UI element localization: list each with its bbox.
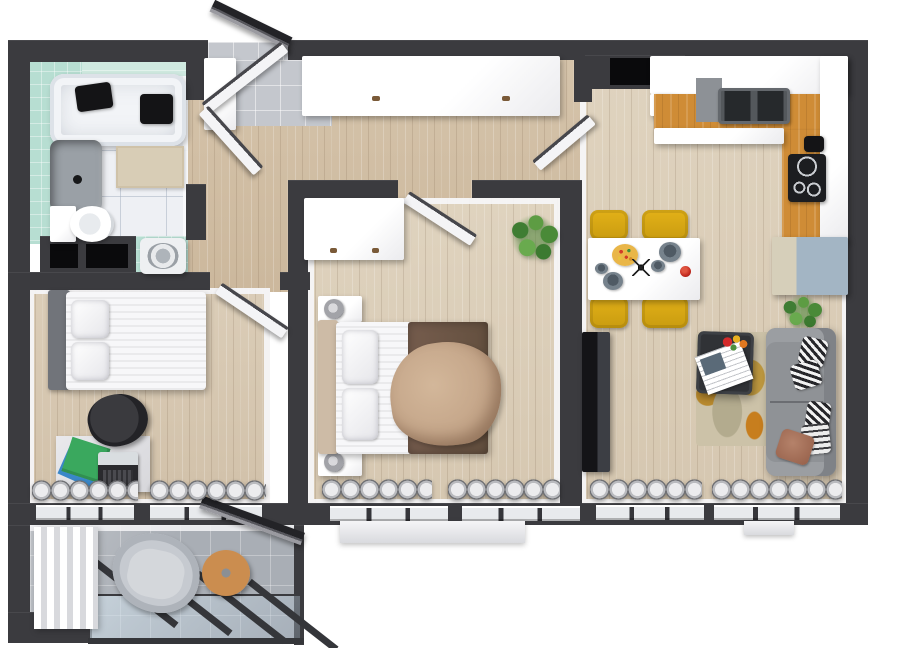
- lamp-bottom: [324, 452, 344, 472]
- wardrobe2-handle-1: [330, 248, 337, 253]
- storage-niche-left: [50, 244, 78, 268]
- cooktop: [788, 154, 826, 202]
- apple: [680, 266, 691, 277]
- bed2-pillow-top: [342, 330, 378, 384]
- plate-small-left: [595, 263, 608, 274]
- dining-chair-bottom-left: [590, 296, 628, 328]
- wardrobe-handle-2: [502, 96, 510, 101]
- toilet-bowl: [70, 206, 114, 242]
- floor-plan-canvas: [0, 0, 900, 648]
- storage-niche-right: [86, 244, 128, 268]
- radiator-bedroom1-left: [32, 477, 138, 507]
- window-living-left: [596, 505, 704, 520]
- plate-large-left: [603, 272, 623, 290]
- bath-mat: [116, 146, 184, 188]
- tv: [582, 332, 610, 472]
- radiator-living-left: [590, 476, 702, 506]
- dining-chair-bottom-right: [642, 296, 688, 328]
- kitchen-cabinets-right: [820, 56, 848, 242]
- wall-bedroom1-top-left: [8, 272, 210, 290]
- railing-base-rail: [88, 638, 304, 644]
- bed2-headboard: [318, 320, 338, 454]
- wardrobe-handle-1: [372, 96, 380, 101]
- hallway-wardrobe: [302, 56, 560, 116]
- window-bedroom2-left: [330, 506, 448, 521]
- plate-large-right: [659, 242, 681, 262]
- lamp-top: [324, 299, 344, 319]
- bed1-pillow-top: [71, 300, 109, 338]
- kitchen-cabinet-front: [654, 128, 784, 144]
- plate-small-right: [651, 260, 665, 272]
- coffee-table-flowers: [720, 334, 750, 354]
- kettle: [804, 136, 824, 152]
- radiator-bedroom1-right: [150, 477, 266, 507]
- bedroom2-wardrobe: [304, 198, 404, 260]
- fridge: [772, 237, 848, 295]
- kitchen-wall-niche-left: [610, 58, 652, 85]
- windowsill-bedroom2: [340, 521, 525, 543]
- stone-sink: [50, 140, 102, 212]
- shower-fixture: [74, 82, 113, 113]
- wall-bedroom2-top-left: [288, 180, 398, 198]
- windowsill-living: [744, 521, 794, 535]
- dining-chair-top-right: [642, 210, 688, 240]
- balcony-side-table: [202, 550, 250, 596]
- radiator-bedroom2-right: [448, 476, 560, 506]
- balcony-curtain: [34, 527, 98, 629]
- washing-machine: [140, 238, 186, 274]
- bed2-pillow-bottom: [342, 388, 378, 440]
- wall-bathroom-right-upper: [186, 40, 206, 100]
- bed1-pillow-bottom: [71, 342, 109, 380]
- living-room-plant: [776, 294, 826, 332]
- radiator-bedroom2-left: [322, 476, 432, 506]
- bath-shelf: [140, 94, 173, 124]
- wardrobe2-handle-2: [372, 248, 379, 253]
- wall-bedroom2-right: [560, 180, 582, 505]
- wall-top-left: [8, 40, 208, 62]
- window-living-right: [714, 505, 840, 520]
- wall-bathroom-right-lower: [186, 184, 206, 240]
- cutlery-holder: [632, 259, 650, 276]
- radiator-living-right: [712, 476, 842, 506]
- window-bedroom1-left: [36, 505, 134, 520]
- wall-right: [846, 40, 868, 525]
- kitchen-sink: [718, 88, 790, 124]
- window-bedroom2-right: [462, 506, 580, 521]
- bedroom2-plant: [504, 210, 562, 268]
- dining-chair-top-left: [590, 210, 628, 240]
